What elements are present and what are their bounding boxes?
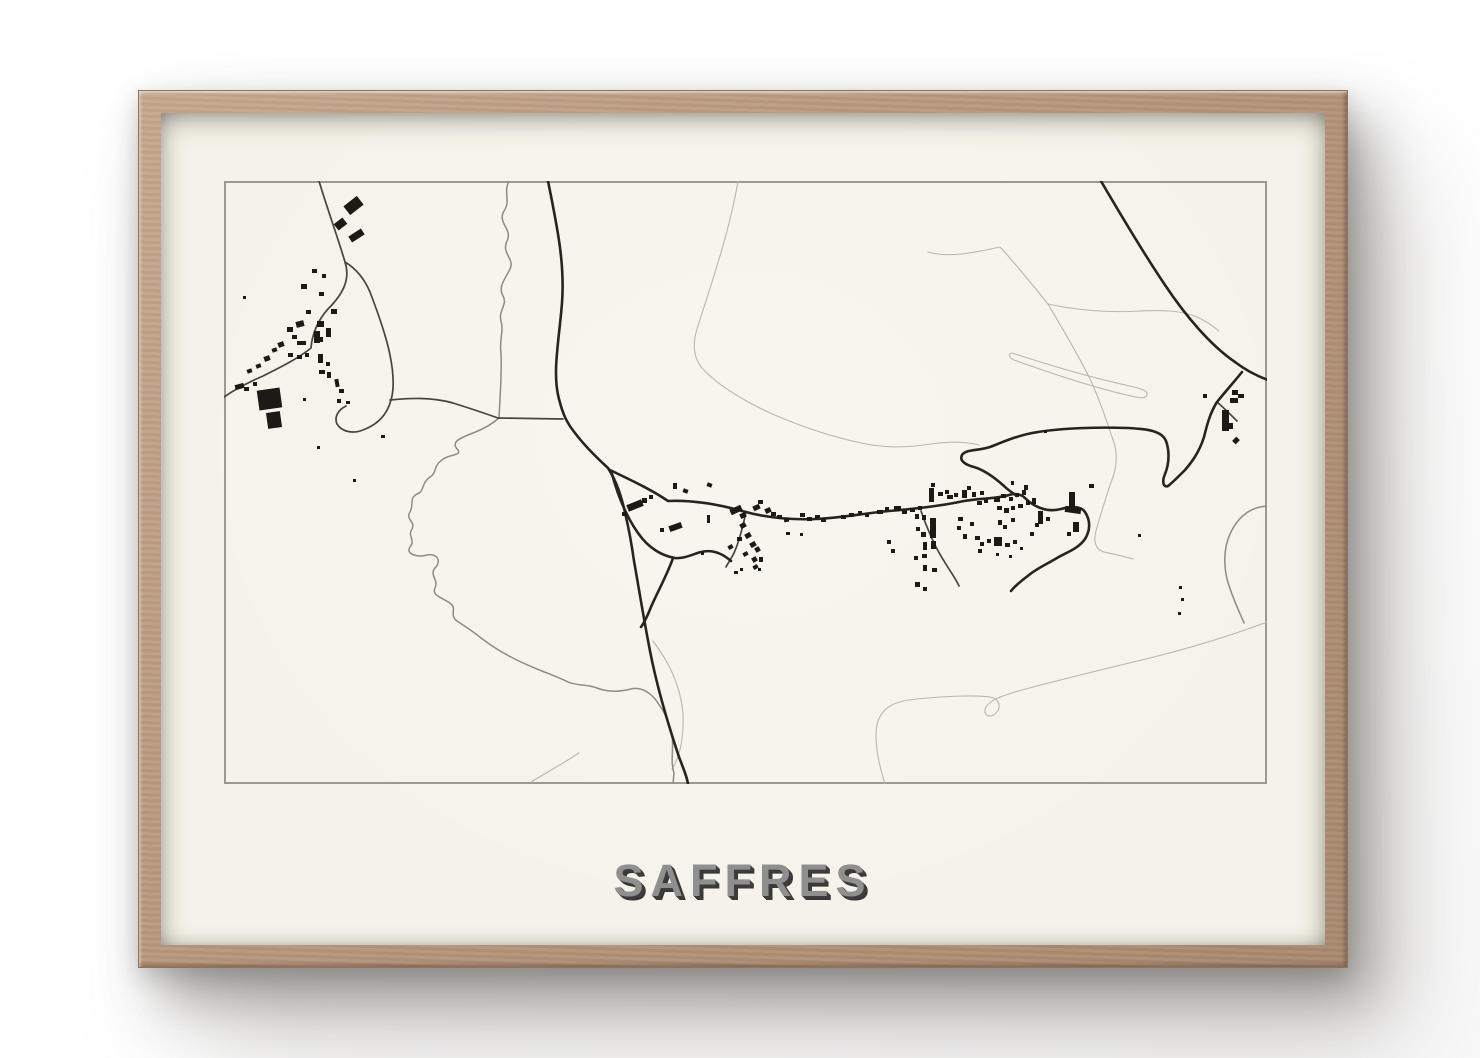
poster-title: SAFFRES — [161, 855, 1325, 907]
poster: SAFFRES — [161, 113, 1325, 945]
picture-frame: SAFFRES — [138, 90, 1348, 968]
map-graphic — [224, 181, 1267, 784]
